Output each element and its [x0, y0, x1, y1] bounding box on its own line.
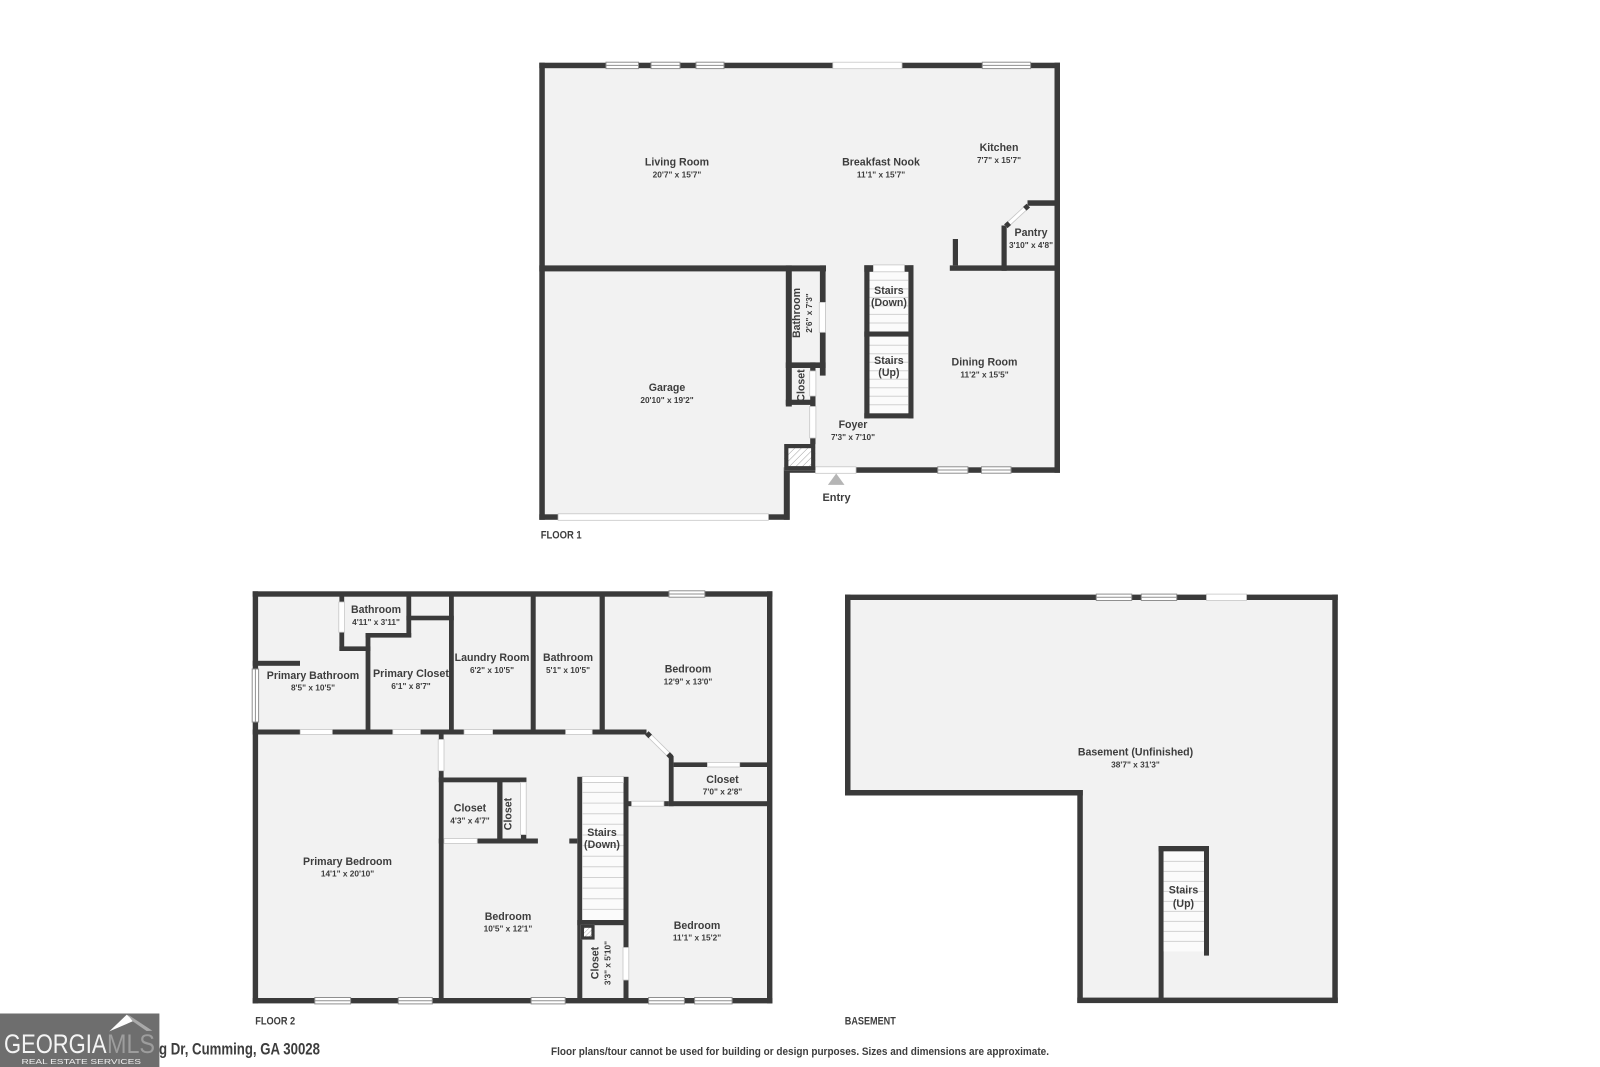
svg-text:Garage: Garage — [649, 382, 686, 394]
svg-text:6'2" x 10'5": 6'2" x 10'5" — [470, 665, 514, 675]
svg-text:11'2" x 15'5": 11'2" x 15'5" — [960, 369, 1008, 379]
svg-text:g Dr, Cumming, GA 30028: g Dr, Cumming, GA 30028 — [159, 1040, 320, 1059]
svg-text:FLOOR 2: FLOOR 2 — [255, 1015, 295, 1027]
svg-text:REAL ESTATE SERVICES: REAL ESTATE SERVICES — [22, 1059, 142, 1066]
svg-text:11'1" x 15'7": 11'1" x 15'7" — [857, 169, 905, 179]
svg-text:38'7" x 31'3": 38'7" x 31'3" — [1111, 760, 1160, 770]
svg-text:8'5" x 10'5": 8'5" x 10'5" — [291, 683, 335, 693]
svg-text:Closet: Closet — [503, 797, 515, 830]
svg-text:11'1" x 15'2": 11'1" x 15'2" — [673, 933, 721, 943]
svg-text:7'3" x 7'10": 7'3" x 7'10" — [831, 432, 875, 442]
svg-text:Bathroom: Bathroom — [543, 652, 593, 664]
svg-text:10'5" x 12'1": 10'5" x 12'1" — [484, 924, 533, 934]
svg-text:3'3" x 5'10": 3'3" x 5'10" — [602, 941, 612, 985]
svg-text:Bedroom: Bedroom — [674, 920, 721, 932]
svg-text:Floor plans/tour cannot be use: Floor plans/tour cannot be used for buil… — [551, 1046, 1049, 1058]
svg-text:Kitchen: Kitchen — [980, 142, 1019, 154]
svg-text:Primary Bedroom: Primary Bedroom — [303, 856, 392, 868]
svg-text:14'1" x 20'10": 14'1" x 20'10" — [321, 869, 374, 879]
svg-text:4'3" x 4'7": 4'3" x 4'7" — [450, 815, 490, 825]
svg-text:Bedroom: Bedroom — [485, 911, 532, 923]
svg-text:Entry: Entry — [822, 492, 851, 504]
svg-text:(Down): (Down) — [871, 297, 907, 309]
svg-text:4'11" x 3'11": 4'11" x 3'11" — [352, 617, 400, 627]
svg-text:MLS: MLS — [107, 1029, 155, 1059]
svg-text:Stairs: Stairs — [874, 355, 904, 367]
svg-text:Primary Bathroom: Primary Bathroom — [267, 670, 359, 682]
svg-text:(Down): (Down) — [584, 839, 620, 851]
svg-text:12'9" x 13'0": 12'9" x 13'0" — [664, 676, 713, 686]
svg-text:20'7" x 15'7": 20'7" x 15'7" — [653, 169, 702, 179]
svg-text:FLOOR 1: FLOOR 1 — [541, 530, 582, 542]
svg-text:Stairs: Stairs — [1169, 885, 1199, 897]
svg-text:Living Room: Living Room — [645, 157, 709, 169]
svg-text:Stairs: Stairs — [587, 827, 617, 839]
svg-text:Primary Closet: Primary Closet — [373, 668, 449, 680]
svg-text:7'7" x 15'7": 7'7" x 15'7" — [977, 155, 1021, 165]
svg-text:Dining Room: Dining Room — [952, 357, 1018, 369]
svg-text:Closet: Closet — [454, 803, 487, 815]
svg-text:Bathroom: Bathroom — [791, 288, 803, 338]
svg-text:7'0" x 2'8": 7'0" x 2'8" — [703, 787, 743, 797]
svg-text:Foyer: Foyer — [839, 419, 868, 431]
svg-text:BASEMENT: BASEMENT — [845, 1015, 896, 1027]
svg-text:Basement (Unfinished): Basement (Unfinished) — [1078, 747, 1193, 759]
svg-text:Bathroom: Bathroom — [351, 604, 401, 616]
svg-text:Closet: Closet — [706, 774, 739, 786]
svg-text:2'6" x 7'3": 2'6" x 7'3" — [804, 293, 814, 333]
svg-text:Closet: Closet — [796, 369, 808, 402]
svg-text:Breakfast Nook: Breakfast Nook — [842, 157, 920, 169]
svg-text:5'1" x 10'5": 5'1" x 10'5" — [546, 665, 590, 675]
svg-text:(Up): (Up) — [1173, 898, 1194, 910]
svg-text:GEORGIA: GEORGIA — [4, 1029, 107, 1059]
svg-text:6'1" x 8'7": 6'1" x 8'7" — [391, 681, 431, 691]
svg-text:Laundry Room: Laundry Room — [455, 652, 530, 664]
svg-text:Bedroom: Bedroom — [665, 664, 712, 676]
svg-text:20'10" x 19'2": 20'10" x 19'2" — [640, 395, 693, 405]
svg-text:Pantry: Pantry — [1015, 227, 1048, 239]
svg-text:Stairs: Stairs — [874, 285, 904, 297]
svg-text:Closet: Closet — [590, 946, 602, 979]
svg-text:3'10" x 4'8": 3'10" x 4'8" — [1009, 240, 1053, 250]
svg-text:(Up): (Up) — [878, 367, 899, 379]
